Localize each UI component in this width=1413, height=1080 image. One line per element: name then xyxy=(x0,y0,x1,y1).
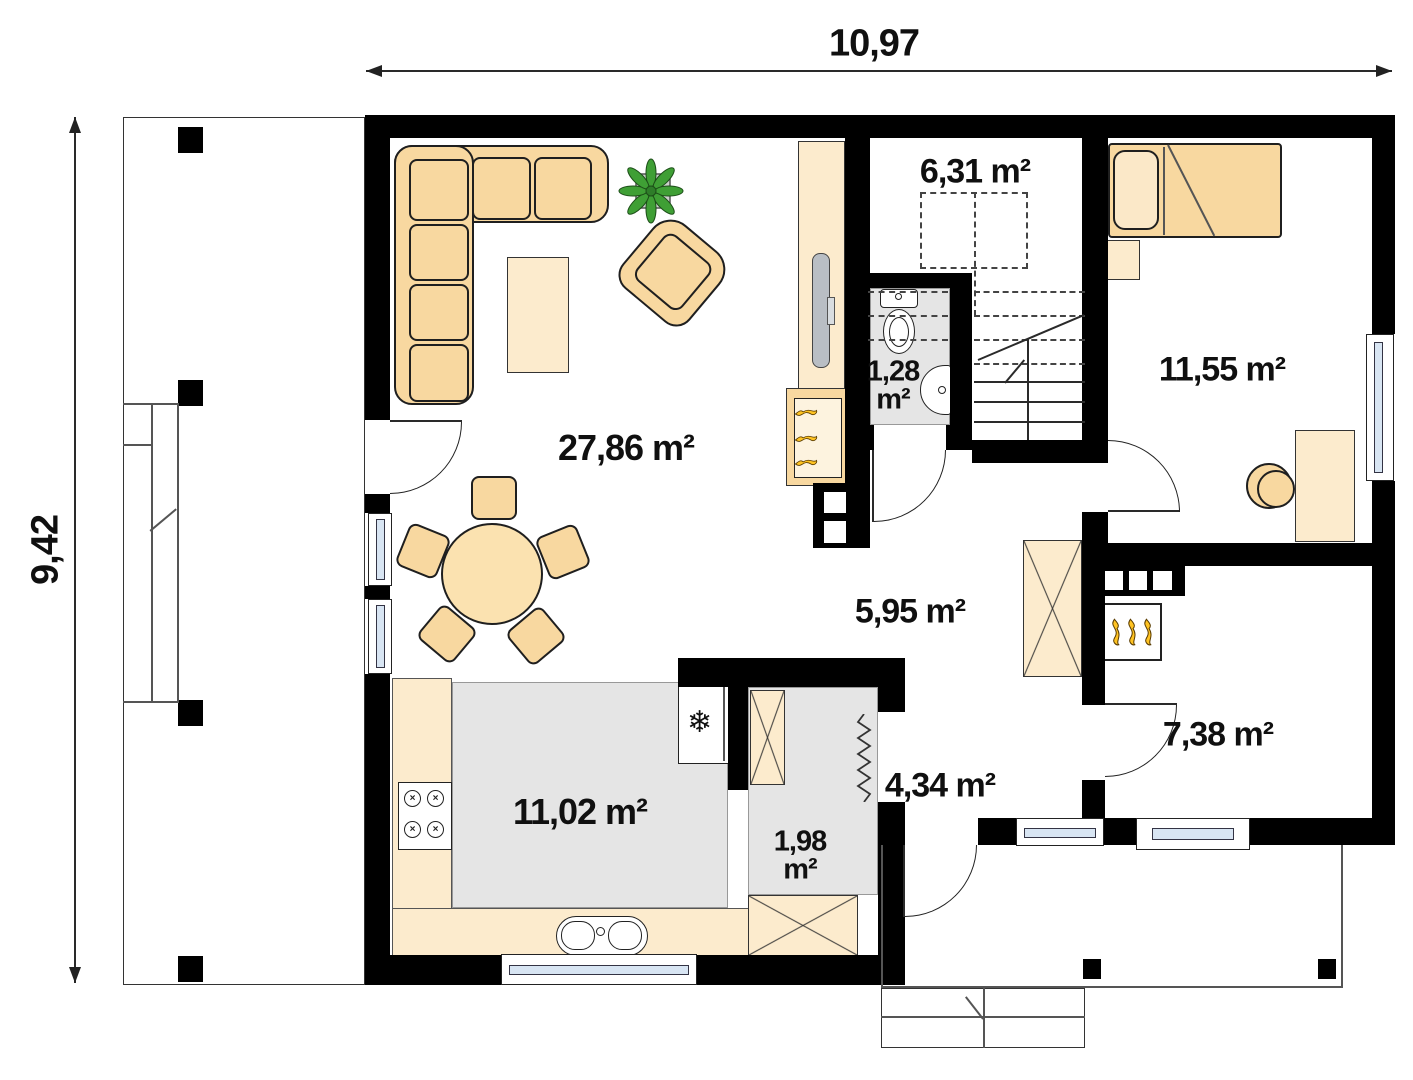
stair-dashed-line xyxy=(868,339,948,341)
burner-icon: × xyxy=(427,821,444,838)
wall xyxy=(365,586,390,599)
wall xyxy=(1082,780,1105,818)
fridge-door-line xyxy=(723,685,725,761)
vent-opening xyxy=(1153,571,1172,590)
toilet-bowl-inner xyxy=(889,317,909,347)
area-unit: m² xyxy=(876,383,909,415)
window-glass xyxy=(1024,828,1096,838)
stair-dashed-line xyxy=(974,291,1085,293)
stove: × × × × xyxy=(398,782,452,850)
room-area-label: 6,31 m² xyxy=(920,153,1030,192)
entrance-door-arc xyxy=(905,845,977,917)
stair-tread xyxy=(974,401,1085,403)
wall xyxy=(950,288,972,440)
plant-icon xyxy=(616,156,686,226)
chimney-flue xyxy=(824,521,846,543)
door-arc xyxy=(390,422,462,494)
wall xyxy=(1372,481,1395,845)
flame-icon xyxy=(1138,612,1155,652)
wall xyxy=(878,687,905,712)
dining-chair xyxy=(471,476,517,520)
wall xyxy=(865,425,874,450)
burner-icon: × xyxy=(404,790,421,807)
sofa-cushion xyxy=(409,284,469,341)
sink-basin xyxy=(608,921,642,950)
desk-chair-seat xyxy=(1257,470,1295,508)
armchair xyxy=(595,205,742,352)
room-area-label: 11,55 m² xyxy=(1159,351,1285,390)
pillar xyxy=(178,956,203,982)
room-area-label: 5,95 m² xyxy=(855,593,965,632)
pillar xyxy=(178,380,203,406)
wall xyxy=(365,494,390,513)
pillar xyxy=(1083,959,1101,979)
sofa-cushion xyxy=(409,344,469,402)
wall xyxy=(1250,818,1395,845)
sofa-cushion xyxy=(409,159,469,221)
wall xyxy=(1082,512,1108,543)
kitchen-sink xyxy=(556,916,648,956)
chimney-flue xyxy=(824,492,846,513)
faucet xyxy=(596,927,605,936)
dimension-height-label: 9,42 xyxy=(25,515,68,585)
vent-opening xyxy=(1104,571,1123,590)
window-glass xyxy=(509,965,689,975)
sink-basin xyxy=(561,921,595,950)
bed-pillow xyxy=(1113,150,1159,230)
room-area-label: 27,86 m² xyxy=(558,427,694,469)
flame-icon xyxy=(1122,612,1139,652)
sofa-cushion xyxy=(534,157,592,220)
pillar xyxy=(1318,959,1336,979)
porch-outline xyxy=(1341,845,1343,988)
bed-fold-line xyxy=(1163,147,1165,235)
wall xyxy=(365,115,1395,138)
pillar xyxy=(178,127,203,153)
stair-break-line xyxy=(978,314,1085,361)
flame-icon xyxy=(794,404,818,424)
wall xyxy=(728,687,748,790)
dimension-width-label: 10,97 xyxy=(829,23,919,66)
wall xyxy=(865,273,972,288)
room-area-label: 1,98 m² xyxy=(774,828,826,883)
dimension-height-line xyxy=(74,117,76,983)
folding-door xyxy=(856,714,872,802)
burner-icon: × xyxy=(404,821,421,838)
window-glass xyxy=(1152,828,1234,840)
wardrobe xyxy=(1023,540,1082,677)
toilet-button xyxy=(895,293,902,300)
arrow-right-icon xyxy=(1376,65,1392,77)
refrigerator: ❄ xyxy=(678,682,730,764)
wall xyxy=(1082,566,1105,705)
arrow-down-icon xyxy=(69,967,81,983)
dimension-width-line xyxy=(366,70,1392,72)
window-glass xyxy=(1374,342,1383,473)
stair-tread xyxy=(974,381,1085,383)
sofa-cushion xyxy=(409,224,469,281)
tv-mount xyxy=(827,297,835,325)
burner-icon: × xyxy=(427,790,444,807)
wc-faucet xyxy=(938,386,946,394)
stair-dashed-line xyxy=(974,363,1085,365)
door-arc xyxy=(1108,440,1180,512)
arrow-left-icon xyxy=(366,65,382,77)
stair-dashed-line xyxy=(974,315,1085,317)
flame-icon xyxy=(794,430,818,450)
stair-dashed-line xyxy=(868,315,948,317)
room-area-label: 1,28 m² xyxy=(867,358,919,413)
wall xyxy=(972,440,1108,463)
room-area-label: 4,34 m² xyxy=(885,767,995,806)
terrace-step-line xyxy=(123,444,152,446)
floor-plan-canvas: 10,97 9,42 xyxy=(0,0,1413,1080)
wall xyxy=(365,115,390,420)
wall xyxy=(365,955,505,985)
stair-dashed-line xyxy=(868,291,948,293)
wardrobe xyxy=(748,895,858,956)
stair-tread xyxy=(974,421,1085,423)
wall xyxy=(978,818,1018,845)
window-glass xyxy=(376,605,385,668)
wall xyxy=(1104,818,1136,845)
wall xyxy=(697,955,905,985)
window-glass xyxy=(376,519,385,580)
wall xyxy=(946,425,972,450)
flame-icon xyxy=(794,454,818,474)
room-area-label: 11,02 m² xyxy=(513,791,647,833)
porch-outline xyxy=(881,845,883,988)
sofa-cushion xyxy=(472,157,531,220)
room-area-label: 7,38 m² xyxy=(1163,716,1273,755)
door-arc xyxy=(874,450,946,522)
stair-dashed-line xyxy=(974,339,1085,341)
vent-opening xyxy=(1129,571,1147,590)
wall xyxy=(1372,115,1395,334)
terrace-step-line xyxy=(123,701,178,703)
terrace-step-line xyxy=(151,403,153,703)
stair-stringer xyxy=(1027,339,1029,440)
stair-dashed-line xyxy=(974,192,976,316)
desk xyxy=(1295,430,1355,542)
snowflake-icon: ❄ xyxy=(687,705,712,740)
flame-icon xyxy=(1106,612,1123,652)
arrow-up-icon xyxy=(69,117,81,133)
wall xyxy=(678,658,905,687)
dining-table xyxy=(441,523,543,625)
area-unit: m² xyxy=(783,853,816,885)
pillar xyxy=(178,700,203,726)
terrace-step-line xyxy=(177,403,179,703)
wall xyxy=(365,674,390,985)
coffee-table xyxy=(507,257,569,373)
wall xyxy=(1082,543,1395,566)
wardrobe xyxy=(750,690,785,785)
terrace-outline xyxy=(123,117,365,985)
wall xyxy=(1082,138,1108,440)
